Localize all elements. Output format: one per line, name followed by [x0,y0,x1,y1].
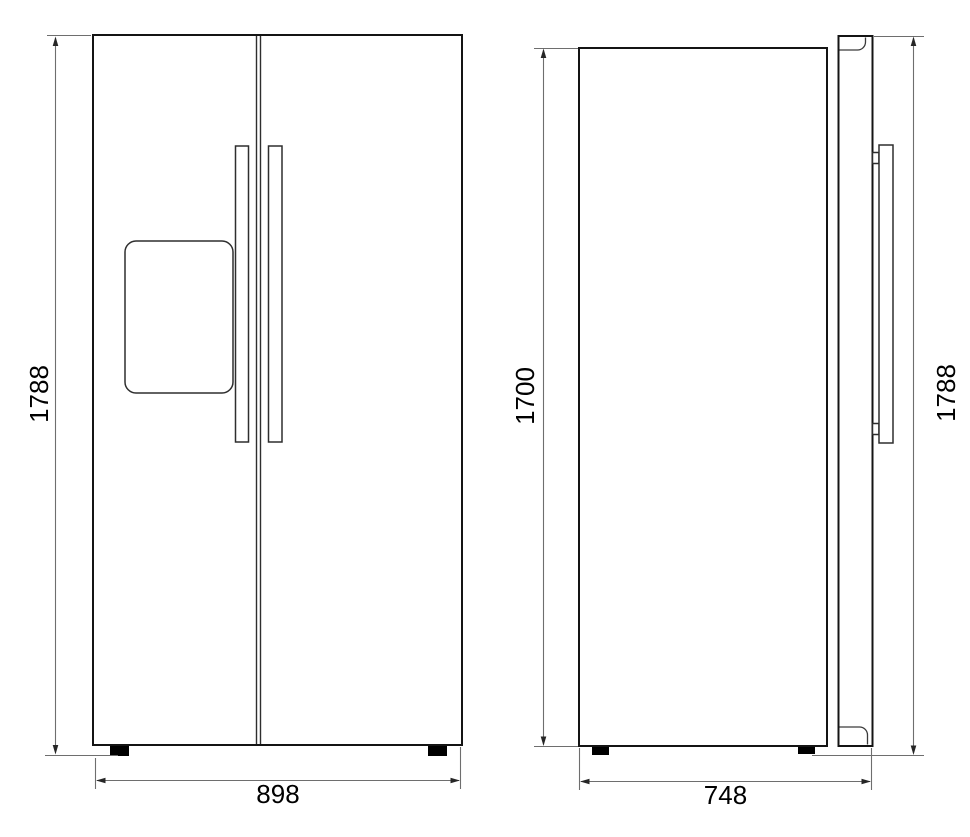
side-view [579,36,893,755]
side-front-foot [798,746,815,754]
side-handle-bottom-bracket [873,424,880,435]
front-left-handle [236,146,249,442]
refrigerator-dimension-drawing: 1788 898 1700 748 [0,0,970,837]
arrowhead-right [862,779,872,785]
side-door-profile [839,36,873,746]
side-rear-foot [592,746,609,755]
side-cabinet-outline [579,48,827,746]
front-dispenser-panel [125,241,233,393]
side-handle-bar [879,145,893,443]
arrowhead-up [541,49,547,59]
dimension-label-side-body-height: 1700 [510,367,540,425]
technical-drawing-canvas: 1788 898 1700 748 [0,0,970,837]
front-left-foot [110,745,129,756]
dimension-side-body-height: 1700 [510,49,578,747]
arrowhead-down [911,746,917,756]
arrowhead-left [580,779,590,785]
dimension-label-side-overall-height: 1788 [931,364,961,422]
front-view [93,35,462,756]
arrowhead-down [53,745,59,755]
dimension-front-overall-width: 898 [96,747,461,809]
dimension-side-depth: 748 [580,748,872,810]
dimension-label-side-depth: 748 [704,780,747,810]
arrowhead-left [96,778,106,784]
dimension-label-front-overall-height: 1788 [24,365,54,423]
dimension-label-front-overall-width: 898 [256,779,299,809]
arrowhead-right [451,778,461,784]
front-right-foot [428,745,447,756]
arrowhead-up [53,37,59,47]
front-right-handle [269,146,283,442]
side-handle-top-bracket [873,153,880,164]
arrowhead-up [911,37,917,47]
arrowhead-down [541,737,547,747]
